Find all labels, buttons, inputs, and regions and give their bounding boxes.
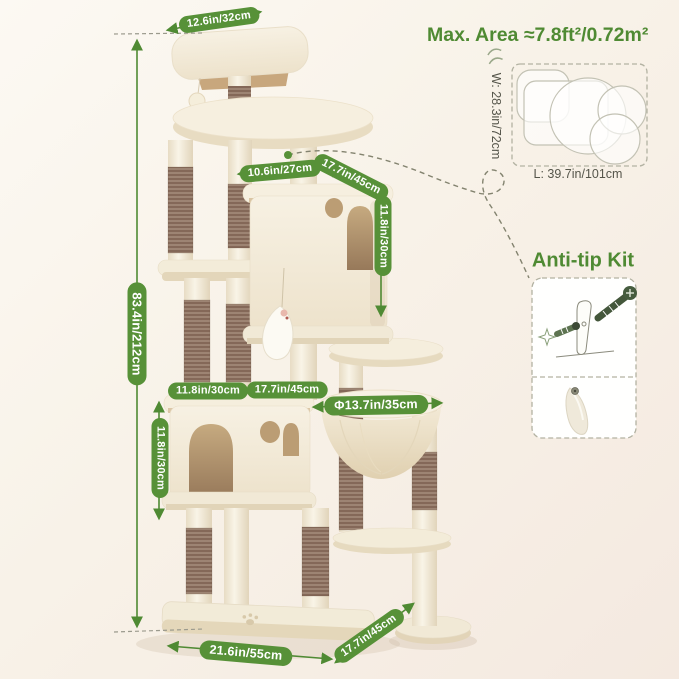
top-condo xyxy=(243,184,393,344)
cat-tree-illustration xyxy=(136,25,400,659)
top-round-platform xyxy=(173,97,373,149)
anti-tip-kit-title: Anti-tip Kit xyxy=(532,250,634,273)
lower-condo-arch-door xyxy=(189,424,233,498)
side-tower xyxy=(320,338,477,650)
dim-total-height: 83.4in/212cm xyxy=(128,282,147,385)
footprint-width-label: W: 28.3in/72cm xyxy=(489,73,503,160)
scene-canvas xyxy=(0,0,679,679)
flourish-anchor-dot xyxy=(284,151,292,159)
anti-tip-kit-box xyxy=(532,278,637,438)
footprint-round-base-shape xyxy=(590,114,640,164)
dim-top-condo-height: 11.8in/30cm xyxy=(375,196,392,276)
left-small-platform xyxy=(158,260,264,281)
dim-lower-condo-width: 11.8in/30cm xyxy=(168,383,248,400)
lower-condo-small-arch xyxy=(283,423,299,456)
product-infographic: { "annotations": { "max_area": "Max. Are… xyxy=(0,0,679,679)
dim-lower-condo-depth: 17.7in/45cm xyxy=(247,382,328,399)
lower-condo-round-hole xyxy=(260,421,280,443)
max-area-label: Max. Area ≈7.8ft²/0.72m² xyxy=(427,24,648,47)
lower-condo xyxy=(162,394,316,510)
footprint-length-label: L: 39.7in/101cm xyxy=(534,167,623,181)
footprint-diagram xyxy=(512,64,647,166)
condo-round-hole xyxy=(325,198,343,218)
dim-lower-condo-height: 11.8in/30cm xyxy=(152,418,169,498)
dim-hammock-diameter: Φ13.7in/35cm xyxy=(324,395,428,415)
squiggle-decoration xyxy=(486,48,504,64)
condo-arch-opening xyxy=(347,206,373,270)
